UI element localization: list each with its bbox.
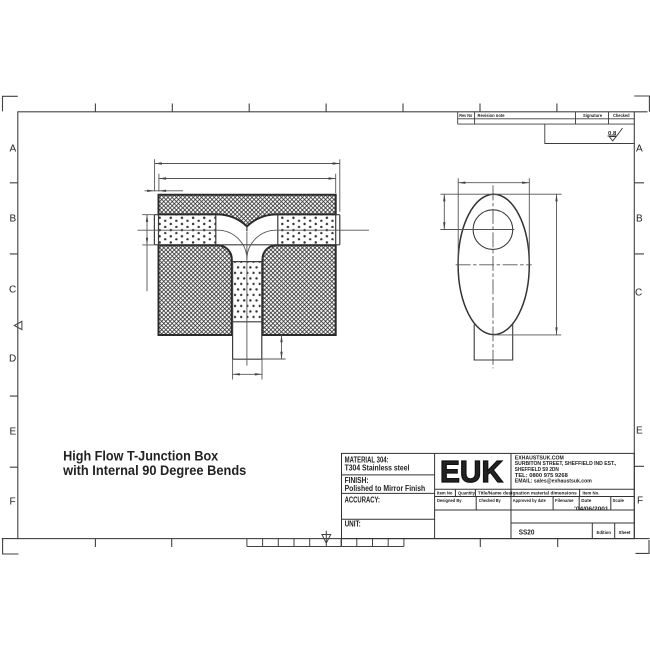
svg-text:C: C	[635, 288, 642, 299]
svg-text:A: A	[10, 144, 17, 155]
svg-text:Rev No: Rev No	[459, 113, 472, 118]
svg-text:A: A	[636, 144, 643, 155]
svg-text:Signature: Signature	[583, 113, 602, 118]
svg-text:Quantity: Quantity	[458, 491, 475, 496]
svg-text:Sheet: Sheet	[619, 530, 631, 535]
svg-text:Revision note: Revision note	[478, 113, 505, 118]
svg-text:EMAIL: sales@exhaustsuk.com: EMAIL: sales@exhaustsuk.com	[515, 479, 592, 485]
svg-text:with Internal 90 Degree Bends: with Internal 90 Degree Bends	[62, 463, 246, 478]
svg-text:C: C	[9, 285, 16, 296]
svg-text:Title/Name designation materia: Title/Name designation material dimensio…	[478, 491, 577, 496]
svg-text:B: B	[636, 214, 643, 225]
svg-text:EUK: EUK	[440, 454, 504, 489]
svg-text:D: D	[9, 354, 16, 365]
svg-text:ACCURACY:: ACCURACY:	[345, 496, 380, 505]
svg-text:F: F	[10, 497, 16, 508]
svg-text:Filename: Filename	[555, 498, 574, 503]
svg-text:High Flow T-Junction Box: High Flow T-Junction Box	[63, 449, 219, 464]
svg-text:F: F	[637, 496, 643, 507]
svg-text:Polished to Mirror Finish: Polished to Mirror Finish	[345, 484, 426, 493]
svg-text:T304 Stainless steel: T304 Stainless steel	[345, 463, 410, 472]
svg-text:Checked: Checked	[613, 113, 630, 118]
svg-text:Item No: Item No	[437, 491, 453, 496]
svg-text:’04/06/2001: ’04/06/2001	[574, 507, 609, 513]
svg-text:Scale: Scale	[613, 498, 625, 503]
svg-text:Checked By: Checked By	[479, 498, 501, 503]
svg-text:0.8: 0.8	[608, 131, 617, 137]
svg-text:Approved by date: Approved by date	[513, 498, 546, 503]
svg-text:E: E	[636, 426, 643, 437]
svg-text:E: E	[10, 427, 17, 438]
svg-text:B: B	[10, 214, 17, 225]
svg-text:UNIT:: UNIT:	[345, 520, 361, 529]
svg-text:Edition: Edition	[597, 530, 612, 535]
svg-text:Designed By: Designed By	[437, 498, 462, 503]
svg-text:Date: Date	[581, 498, 591, 503]
svg-text:SS20: SS20	[519, 530, 535, 537]
svg-text:Item No.: Item No.	[583, 491, 600, 496]
